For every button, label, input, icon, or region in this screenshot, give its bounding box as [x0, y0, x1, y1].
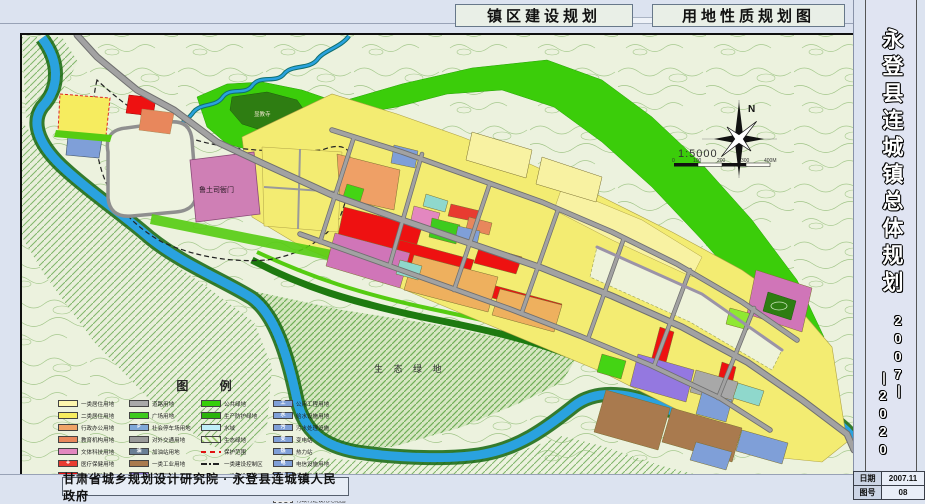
- legend-item: 变变电站: [273, 435, 350, 444]
- heritage-label: 鲁土司衙门: [199, 185, 234, 194]
- legend-item: 电电信设施用地: [273, 459, 350, 468]
- title-landuse-plan: 用地性质规划图: [652, 4, 845, 27]
- legend-swatch: ✚: [58, 460, 78, 467]
- legend-label: 给水设施用地: [296, 411, 329, 419]
- legend-label: 热力站: [296, 447, 313, 455]
- sidebar: 永登县连城镇总体规划 2007丨 丨2020: [853, 0, 925, 500]
- legend-item: 广场用地: [129, 411, 194, 420]
- legend-label: 污水处理设施: [296, 423, 329, 431]
- legend-swatch: [58, 436, 78, 443]
- legend-swatch: 变: [273, 436, 293, 443]
- legend-label: 行政办公用地: [81, 423, 114, 431]
- attribution-box: 甘肃省城乡规划设计研究院 · 永登县连城镇人民政府: [62, 477, 349, 496]
- legend-item: 一类居住用地: [58, 399, 122, 408]
- legend-swatch: [201, 451, 221, 453]
- legend-item: 生产防护绿地: [201, 411, 266, 420]
- legend-swatch: 热: [273, 448, 293, 455]
- legend-item: 油加油站用地: [129, 447, 194, 456]
- scale-tick: 200: [717, 158, 726, 164]
- legend-item: 水域: [201, 423, 266, 432]
- legend-label: 医疗保健用地: [81, 459, 114, 467]
- legend-item: 对外交通用地: [129, 435, 194, 444]
- legend-swatch: [129, 460, 149, 467]
- legend-label: 生产防护绿地: [224, 411, 257, 419]
- legend-swatch: [129, 400, 149, 407]
- legend-swatch: [201, 424, 221, 431]
- legend-label: 水域: [224, 423, 235, 431]
- legend-label: 一类居住用地: [81, 399, 114, 407]
- date-value: 2007.11: [882, 472, 924, 485]
- ring-road: [107, 122, 196, 216]
- north-label: N: [748, 104, 755, 115]
- legend-label: 公用工程用地: [296, 399, 329, 407]
- title-block-table: 日期 2007.11 图号 08: [853, 471, 925, 500]
- legend-label: 公共绿地: [224, 399, 246, 407]
- title-landuse-plan-label: 用地性质规划图: [682, 5, 815, 26]
- legend-label: 一类工业用地: [152, 459, 185, 467]
- legend-label: 文体科技用地: [81, 447, 114, 455]
- legend-item: 行政办公用地: [58, 423, 122, 432]
- legend-label: 加油站用地: [152, 447, 180, 455]
- eco-green-label: 生 态 绿 地: [374, 363, 446, 374]
- legend-label: 一类建设控制区: [224, 459, 263, 467]
- legend-label: 道路用地: [152, 399, 174, 407]
- legend-item: 二类居住用地: [58, 411, 122, 420]
- legend-label: 变电站: [296, 435, 313, 443]
- plan-years-end: 丨2020: [874, 372, 893, 460]
- legend-label: 生态绿地: [224, 435, 246, 443]
- title-construction-plan: 镇区建设规划: [455, 4, 633, 27]
- title-block-row-number: 图号 08: [853, 486, 925, 500]
- legend-item: 保护范围: [201, 447, 266, 456]
- legend-swatch: 污: [273, 424, 293, 431]
- sheet-number-label: 图号: [854, 486, 882, 499]
- date-label: 日期: [854, 472, 882, 485]
- legend-item: 生态绿地: [201, 435, 266, 444]
- legend-item: 一类工业用地: [129, 459, 194, 468]
- legend-item: 水给水设施用地: [273, 411, 350, 420]
- legend-swatch: 油: [129, 448, 149, 455]
- temple-label: 显教寺: [254, 110, 271, 118]
- legend-swatch: [201, 436, 221, 443]
- legend-title: 图 例: [58, 377, 350, 394]
- legend-swatch: [129, 412, 149, 419]
- legend-swatch: [58, 448, 78, 455]
- legend-swatch: [58, 412, 78, 419]
- title-block-row-date: 日期 2007.11: [853, 471, 925, 486]
- legend-label: 教育机构用地: [81, 435, 114, 443]
- legend-item: 文体科技用地: [58, 447, 122, 456]
- legend-item: 热热力站: [273, 447, 350, 456]
- legend-item: 道路用地: [129, 399, 194, 408]
- legend-label: 对外交通用地: [152, 435, 185, 443]
- legend-swatch: 工: [273, 400, 293, 407]
- legend-swatch: [129, 436, 149, 443]
- legend-swatch: [201, 463, 221, 465]
- title-construction-plan-label: 镇区建设规划: [487, 5, 601, 26]
- legend-swatch: [201, 412, 221, 419]
- legend-label: 保护范围: [224, 447, 246, 455]
- scale-tick: 400M: [764, 158, 777, 164]
- legend-item: 污污水处理设施: [273, 423, 350, 432]
- legend-label: 电信设施用地: [296, 459, 329, 467]
- attribution-text: 甘肃省城乡规划设计研究院 · 永登县连城镇人民政府: [63, 470, 348, 504]
- legend-label: 社会停车场用地: [152, 423, 191, 431]
- legend-label: 二类居住用地: [81, 411, 114, 419]
- legend-item: 教育机构用地: [58, 435, 122, 444]
- map-panel: 鲁土司衙门 显教寺 生 态 绿 地 N 1:5000 0 100 200 300…: [20, 33, 857, 478]
- legend-item: P社会停车场用地: [129, 423, 194, 432]
- sheet-number-value: 08: [882, 486, 924, 499]
- legend-label: 广场用地: [152, 411, 174, 419]
- legend-item: 公共绿地: [201, 399, 266, 408]
- scale-tick: 0: [672, 158, 675, 164]
- legend-item: ✚医疗保健用地: [58, 459, 122, 468]
- legend-swatch: [58, 400, 78, 407]
- legend-swatch: [201, 400, 221, 407]
- legend-swatch: 电: [273, 460, 293, 467]
- scale-tick: 300: [741, 158, 750, 164]
- legend-item: 一类建设控制区: [201, 459, 266, 468]
- legend-swatch: P: [129, 424, 149, 431]
- plan-title-vertical: 永登县连城镇总体规划: [876, 28, 906, 298]
- scale-tick: 100: [693, 158, 702, 164]
- sidebar-title-box: 永登县连城镇总体规划 2007丨 丨2020: [865, 0, 917, 471]
- legend-swatch: [58, 424, 78, 431]
- legend-swatch: 水: [273, 412, 293, 419]
- legend-item: 工公用工程用地: [273, 399, 350, 408]
